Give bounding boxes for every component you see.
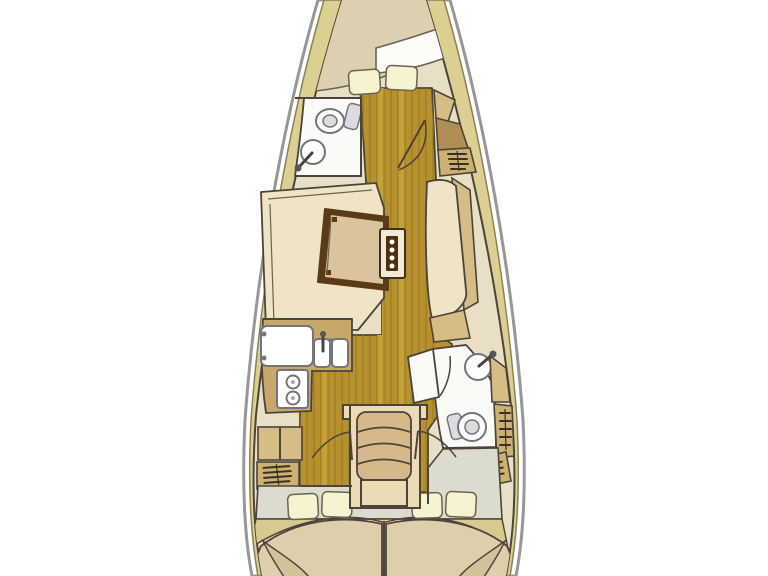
pillow	[445, 491, 476, 518]
aft-head-door	[408, 349, 439, 403]
port-aft-lockers	[257, 427, 302, 489]
yacht-floor-plan	[0, 0, 768, 576]
toilet-icon	[446, 413, 486, 441]
pillow	[322, 491, 353, 517]
fridge-icon	[261, 326, 313, 366]
mast-post-panel	[380, 229, 405, 278]
floor-plan-canvas	[0, 0, 768, 576]
pillow	[287, 493, 318, 520]
pillow	[385, 65, 417, 91]
pillow	[348, 69, 381, 95]
salon-table	[318, 209, 388, 290]
stove-icon	[277, 370, 308, 408]
forward-head	[295, 98, 363, 176]
steps-landing	[361, 480, 407, 506]
